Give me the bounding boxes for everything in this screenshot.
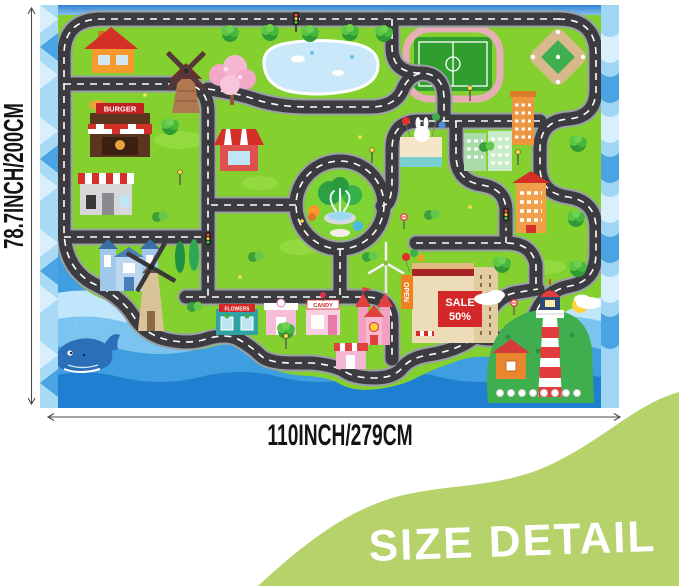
mall-awnings-icon — [416, 331, 434, 336]
width-dimension-label: 110INCH/279CM — [263, 419, 417, 453]
flower-shop: FLOWERS — [216, 304, 258, 335]
burger-shop: BURGER — [88, 100, 152, 157]
cafe-shop — [78, 173, 134, 215]
candy-sign: CANDY — [313, 303, 333, 309]
burger-awning-icon — [88, 124, 152, 134]
mat-border-left — [40, 5, 58, 408]
pond — [264, 41, 378, 95]
fountain-roundabout — [307, 172, 373, 238]
height-dimension-label: 78.7INCH/200CM — [0, 77, 28, 275]
sale-sign: SALE — [445, 297, 474, 309]
open-flag: OPEN — [402, 282, 409, 302]
play-mat-graphic: BURGER — [40, 5, 619, 408]
sale-percent: 50% — [449, 311, 471, 323]
burger-sign: BURGER — [104, 105, 137, 114]
size-detail-label: SIZE DETAIL — [368, 512, 657, 571]
flowers-sign: FLOWERS — [225, 307, 251, 313]
cafe-awning-icon — [78, 173, 134, 184]
play-mat: BURGER — [40, 5, 619, 408]
size-detail-page: BURGER — [0, 0, 679, 586]
mat-border-right — [601, 5, 619, 408]
pink-house — [334, 343, 368, 369]
soccer-field — [406, 29, 500, 99]
tent-shop — [214, 129, 264, 171]
height-arrow — [28, 8, 35, 404]
